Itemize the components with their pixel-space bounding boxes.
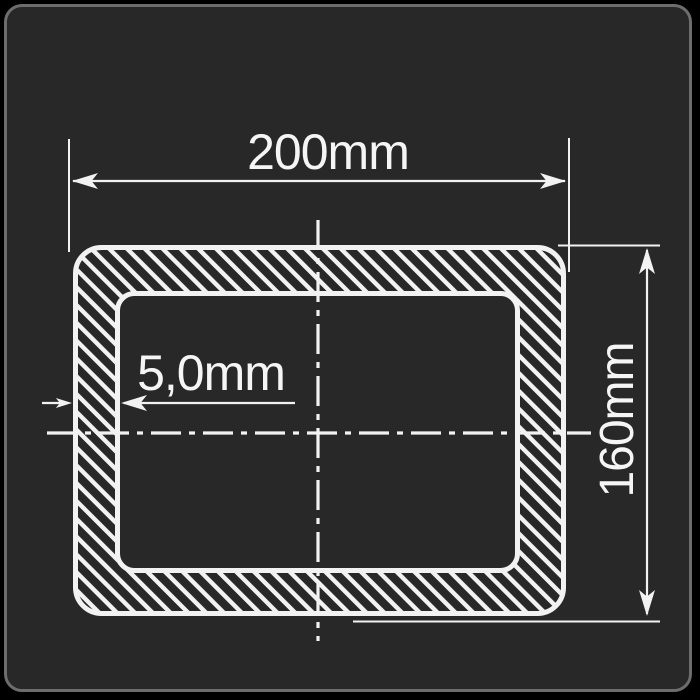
height-dimension-label: 160mm xyxy=(591,342,644,497)
screenshot-stage: 200mm 160mm 5,0mm xyxy=(0,0,700,700)
tube-cross-section-drawing: 200mm 160mm 5,0mm xyxy=(0,0,700,700)
width-dimension-label: 200mm xyxy=(247,124,409,180)
wall-thickness-label: 5,0mm xyxy=(137,345,285,401)
